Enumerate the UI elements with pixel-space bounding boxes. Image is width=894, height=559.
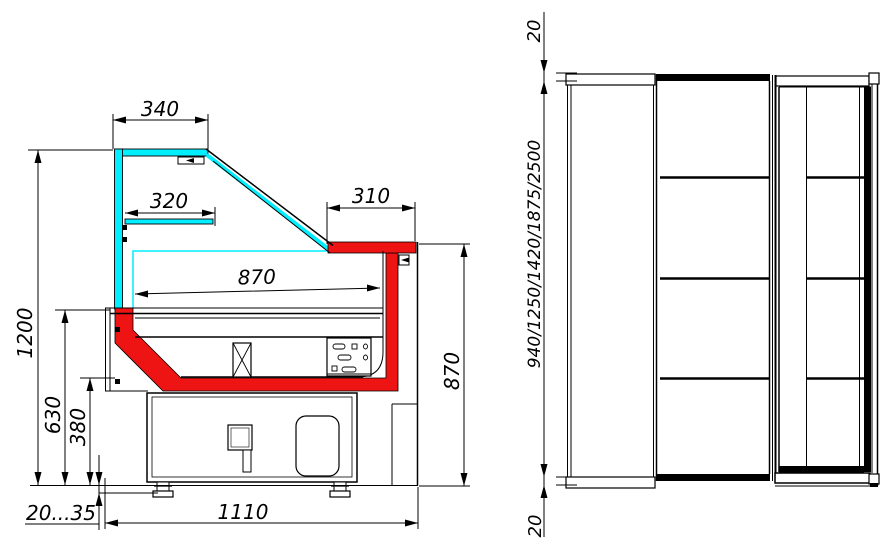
dim-foot-adjust: 20...35 [26, 501, 96, 525]
sloped-front-glass [207, 155, 331, 251]
dim-shelf-width: 320 [150, 189, 188, 213]
electric-box-stem [243, 450, 251, 472]
front-caps [566, 73, 879, 488]
front-view-lines [566, 73, 878, 486]
dim-overall-depth: 1110 [218, 500, 269, 524]
door-bottom-rail [775, 473, 870, 483]
dim-interior-depth: 870 [237, 265, 276, 290]
front-black-profiles [656, 74, 878, 487]
adjustable-feet [153, 482, 350, 497]
door2-edge-profile [864, 87, 871, 472]
corner-block-bottom [869, 474, 879, 484]
evaporator-panel [327, 338, 371, 376]
dim-base-height: 380 [66, 408, 90, 446]
glass-shelf [125, 219, 213, 224]
electric-box [228, 425, 252, 450]
corner-block-top [869, 73, 879, 84]
front-thin-lines [566, 75, 878, 486]
door1-top-profile [656, 74, 770, 81]
machine-compartment [147, 393, 357, 482]
front-glass [115, 149, 123, 309]
drawing-canvas: 340 320 310 870 1200 630 380 20...35 111… [0, 0, 894, 559]
glass-panels [115, 149, 214, 309]
door1-bottom-profile [656, 474, 770, 481]
technical-drawing: 340 320 310 870 1200 630 380 20...35 111… [0, 0, 894, 559]
dim-top-clearance: 20 [524, 20, 545, 43]
corner-foot-block [870, 483, 878, 487]
compressor [296, 416, 339, 476]
dim-deck-height: 630 [41, 396, 65, 434]
side-panel-bottom-cap [566, 477, 655, 488]
door-top-cap [776, 76, 869, 86]
side-panel-top-cap [566, 74, 655, 85]
dim-canopy-width: 340 [141, 97, 179, 121]
front-view [566, 73, 879, 488]
door2-bottom-profile [779, 466, 864, 472]
dim-bottom-clearance: 20 [525, 515, 546, 538]
shelf-lines [660, 178, 864, 379]
dim-counter-depth: 310 [352, 184, 390, 208]
dim-overall-height: 1200 [13, 308, 37, 359]
canopy-glass [115, 149, 208, 156]
counter-top-red [328, 242, 416, 253]
dim-counter-height: 870 [440, 352, 464, 390]
dim-height-options: 940/1250/1420/1875/2500 [525, 140, 545, 368]
foot-left-base [153, 491, 173, 497]
foot-right-base [330, 491, 350, 497]
